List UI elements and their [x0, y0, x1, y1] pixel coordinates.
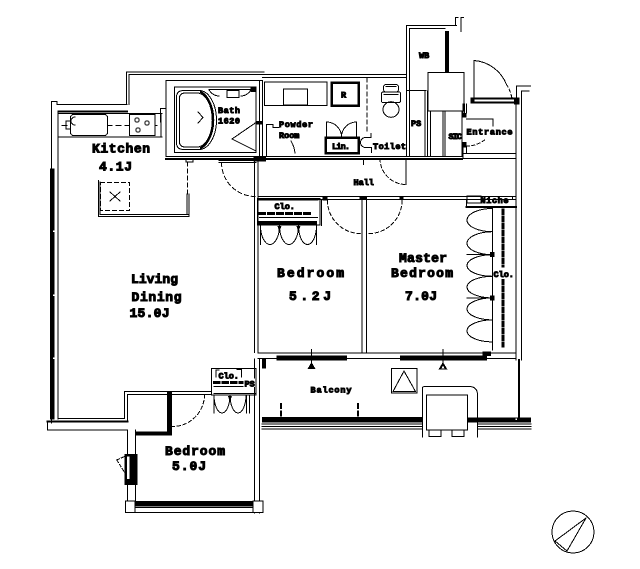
svg-text:WB: WB: [419, 51, 429, 61]
svg-text:Lin.: Lin.: [332, 142, 350, 152]
svg-text:Clo.: Clo.: [219, 372, 239, 382]
svg-text:Bedroom: Bedroom: [165, 444, 225, 459]
svg-text:15.0J: 15.0J: [130, 306, 170, 321]
svg-text:Bath: Bath: [218, 106, 240, 116]
svg-text:Master: Master: [399, 251, 447, 266]
svg-text:Clo.: Clo.: [494, 270, 514, 280]
svg-text:Powder: Powder: [279, 120, 313, 130]
svg-text:Bedroom: Bedroom: [277, 266, 344, 281]
svg-text:Hall: Hall: [354, 178, 374, 188]
svg-text:Room: Room: [279, 131, 299, 141]
svg-text:Clo.: Clo.: [275, 202, 295, 212]
svg-text:Bedroom: Bedroom: [391, 266, 453, 281]
svg-text:Dining: Dining: [132, 290, 182, 305]
svg-text:SIC: SIC: [449, 132, 463, 142]
svg-text:4.1J: 4.1J: [99, 160, 132, 175]
svg-text:PS: PS: [245, 380, 255, 390]
svg-text:Entrance: Entrance: [467, 128, 513, 138]
svg-text:Living: Living: [131, 272, 178, 287]
svg-text:Balcony: Balcony: [311, 386, 352, 396]
svg-text:1620: 1620: [218, 117, 240, 127]
svg-text:Toilet: Toilet: [373, 142, 406, 152]
svg-text:5.0J: 5.0J: [172, 459, 206, 474]
svg-text:R: R: [341, 91, 347, 101]
svg-text:Niche: Niche: [481, 196, 509, 206]
svg-text:Kitchen: Kitchen: [92, 142, 150, 157]
svg-text:7.0J: 7.0J: [405, 289, 437, 304]
svg-text:PS: PS: [411, 119, 421, 129]
